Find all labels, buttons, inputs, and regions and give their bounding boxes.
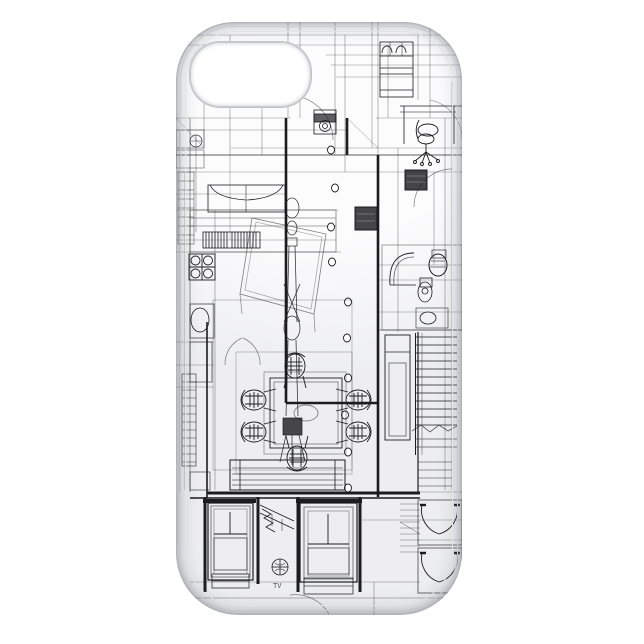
double-swing-doors (418, 500, 462, 593)
washing-machine (314, 110, 336, 134)
blueprint-artwork: TV (176, 22, 462, 615)
wash-basin (416, 308, 448, 328)
linework-root: TV (176, 22, 462, 615)
sofa-bench (213, 300, 352, 490)
wardrobe-cabinet (380, 42, 413, 97)
window-elevation-left (208, 503, 253, 588)
kitchen-sink (190, 304, 214, 338)
circle-cross-symbol (272, 559, 288, 575)
office-swivel-chair (414, 120, 440, 166)
staircase-treads (412, 333, 458, 486)
phone-case: TV (176, 22, 462, 615)
interior-stair-detail (260, 505, 294, 532)
thick-plan-walls (190, 118, 420, 592)
bathroom-fixtures (382, 245, 462, 330)
tall-panel (385, 335, 410, 440)
window-elevation-right (300, 503, 357, 594)
double-bed (208, 185, 285, 212)
product-photo: TV (0, 0, 644, 644)
toilet (418, 278, 432, 302)
equipment-wireframe (280, 198, 305, 465)
tv-annotation: TV (273, 582, 282, 590)
camera-cutout (190, 42, 311, 107)
structural-grid-lines (176, 22, 462, 615)
dark-cabinet-blocks (355, 170, 427, 230)
stove-burners (189, 254, 215, 280)
interior-stair-detail-right (400, 504, 420, 552)
office-desk (400, 106, 462, 144)
